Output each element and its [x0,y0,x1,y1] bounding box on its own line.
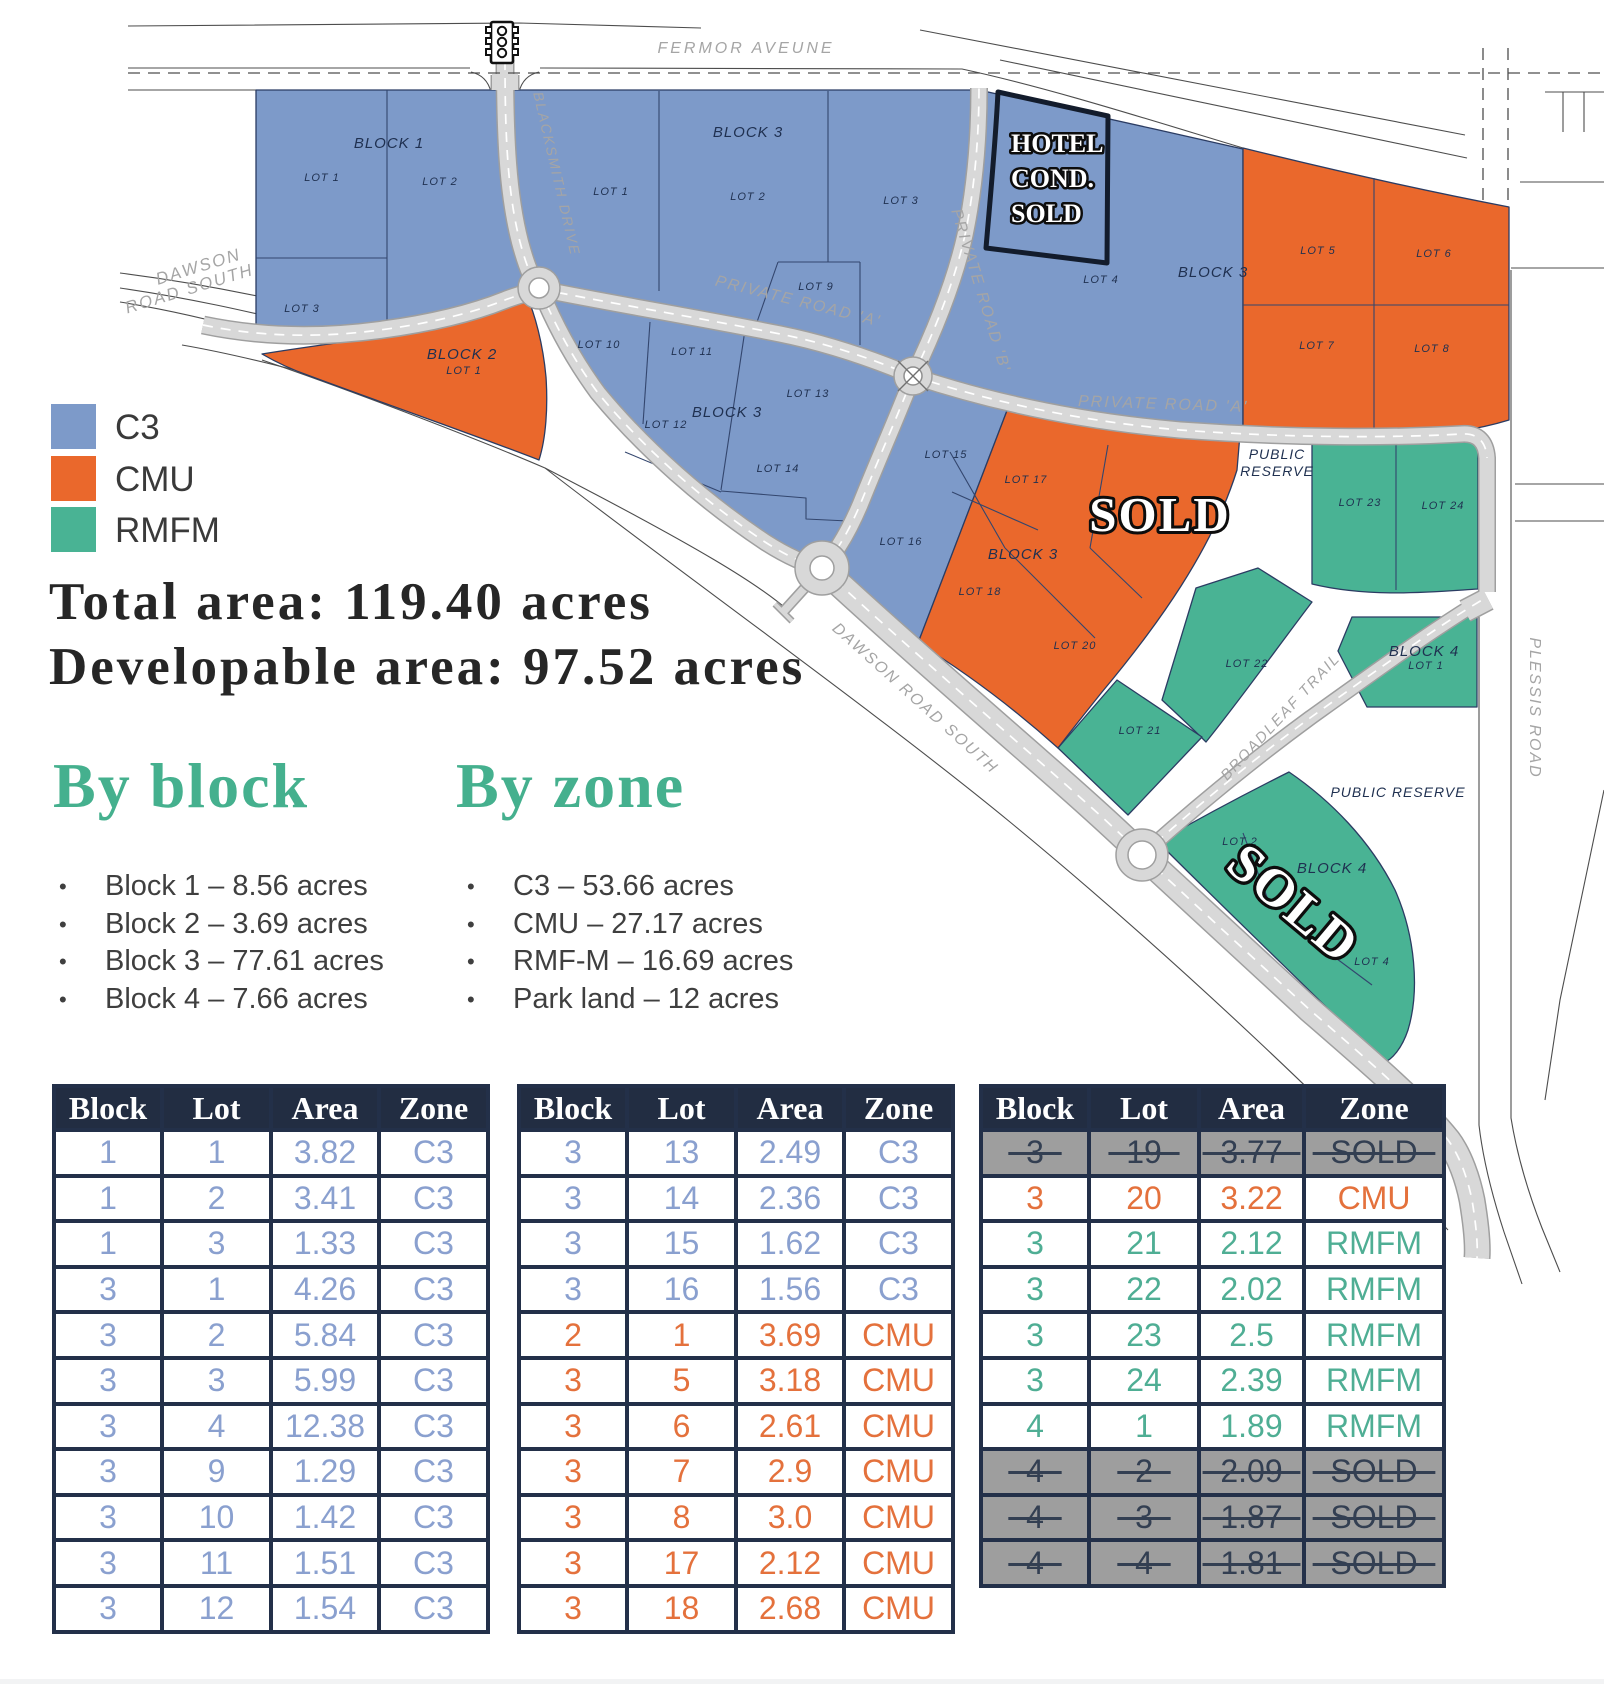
svg-text:LOT 10: LOT 10 [578,339,621,351]
svg-text:LOT 1: LOT 1 [446,365,482,377]
svg-text:LOT 24: LOT 24 [1422,500,1465,512]
svg-text:LOT 1: LOT 1 [304,172,340,184]
svg-text:LOT 21: LOT 21 [1119,725,1162,737]
svg-text:RESERVE: RESERVE [1240,463,1314,479]
svg-text:LOT 15: LOT 15 [925,449,968,461]
svg-text:LOT 7: LOT 7 [1299,340,1335,352]
svg-text:LOT 12: LOT 12 [645,419,688,431]
svg-text:LOT 18: LOT 18 [959,586,1002,598]
svg-text:LOT 13: LOT 13 [787,388,830,400]
svg-text:SOLD: SOLD [1089,487,1230,542]
svg-text:LOT 20: LOT 20 [1054,640,1097,652]
svg-text:LOT 4: LOT 4 [1083,274,1119,286]
svg-text:BLOCK 4: BLOCK 4 [1297,860,1367,877]
svg-text:COND.: COND. [1011,164,1094,193]
svg-text:LOT 2: LOT 2 [422,176,458,188]
svg-text:LOT 2: LOT 2 [730,191,766,203]
svg-text:LOT 3: LOT 3 [883,195,919,207]
svg-text:BLOCK 3: BLOCK 3 [988,546,1058,563]
svg-text:HOTEL: HOTEL [1011,129,1103,158]
svg-text:LOT 1: LOT 1 [593,186,629,198]
svg-text:LOT 17: LOT 17 [1005,474,1048,486]
svg-text:LOT 1: LOT 1 [1408,660,1444,672]
svg-text:BLOCK 3: BLOCK 3 [1178,264,1248,281]
svg-text:LOT 4: LOT 4 [1354,956,1390,968]
svg-text:BLOCK 2: BLOCK 2 [427,346,497,363]
svg-text:LOT 16: LOT 16 [880,536,923,548]
svg-text:LOT 6: LOT 6 [1416,248,1452,260]
svg-text:LOT 8: LOT 8 [1414,343,1450,355]
svg-text:PUBLIC: PUBLIC [1249,446,1306,462]
svg-text:LOT 5: LOT 5 [1300,245,1336,257]
svg-text:LOT 3: LOT 3 [284,303,320,315]
svg-text:LOT 14: LOT 14 [757,463,800,475]
svg-text:BLOCK 4: BLOCK 4 [1389,643,1459,660]
svg-text:SOLD: SOLD [1011,199,1082,228]
svg-text:BLOCK 3: BLOCK 3 [692,404,762,421]
svg-text:PLESSIS ROAD: PLESSIS ROAD [1526,637,1543,778]
svg-text:LOT 23: LOT 23 [1339,497,1382,509]
svg-text:PUBLIC RESERVE: PUBLIC RESERVE [1330,784,1465,800]
svg-text:LOT 9: LOT 9 [798,281,834,293]
svg-text:LOT 11: LOT 11 [671,346,713,358]
svg-text:BLOCK 3: BLOCK 3 [713,124,783,141]
svg-text:BLOCK 1: BLOCK 1 [354,135,424,152]
svg-text:FERMOR AVEUNE: FERMOR AVEUNE [657,40,834,57]
svg-text:LOT 22: LOT 22 [1226,658,1269,670]
